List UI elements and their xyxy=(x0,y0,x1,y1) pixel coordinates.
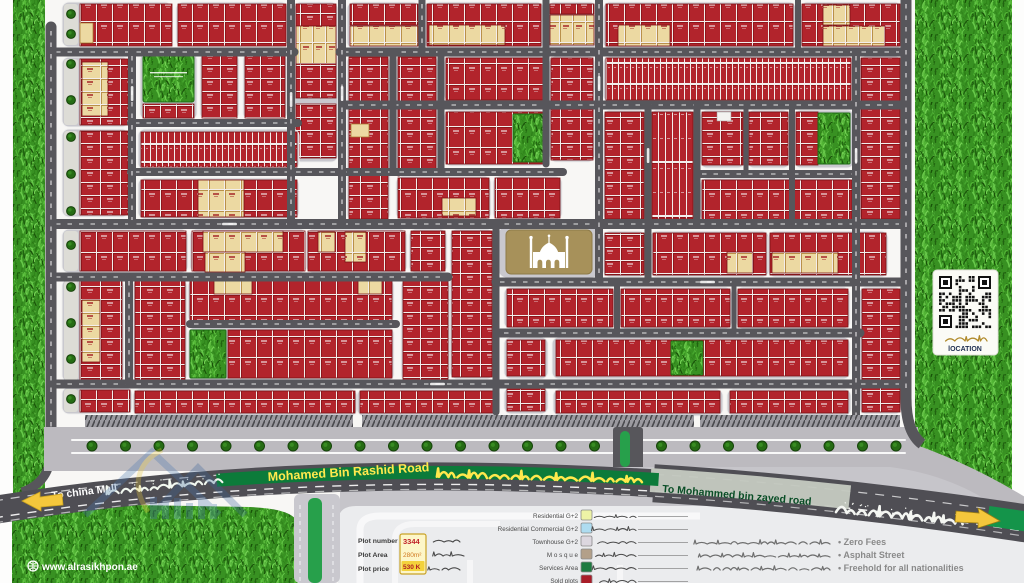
svg-text:lOCATION: lOCATION xyxy=(948,346,982,353)
svg-text:530 K: 530 K xyxy=(403,564,421,571)
svg-text:Plot number: Plot number xyxy=(358,538,398,545)
svg-text:M o s q u e: M o s q u e xyxy=(547,552,579,559)
svg-text:Plot Area: Plot Area xyxy=(358,552,388,559)
svg-text:Residential G+2: Residential G+2 xyxy=(533,513,578,520)
svg-text:• Asphalt Street: • Asphalt Street xyxy=(838,550,904,560)
svg-text:Plot price: Plot price xyxy=(358,566,389,573)
svg-text:• Zero Fees: • Zero Fees xyxy=(838,537,886,547)
svg-text:• Freehold for all nationaliti: • Freehold for all nationalities xyxy=(838,563,964,573)
svg-text:Residential Commercial G+2: Residential Commercial G+2 xyxy=(498,526,579,533)
svg-text:280m²: 280m² xyxy=(403,552,422,559)
svg-text:www.alrasikhpon.ae: www.alrasikhpon.ae xyxy=(41,562,138,573)
svg-text:3344: 3344 xyxy=(403,537,421,546)
svg-text:Townhouse G+2: Townhouse G+2 xyxy=(532,539,578,546)
svg-text:Services Area: Services Area xyxy=(539,565,578,572)
svg-text:Sold plots: Sold plots xyxy=(550,578,578,583)
